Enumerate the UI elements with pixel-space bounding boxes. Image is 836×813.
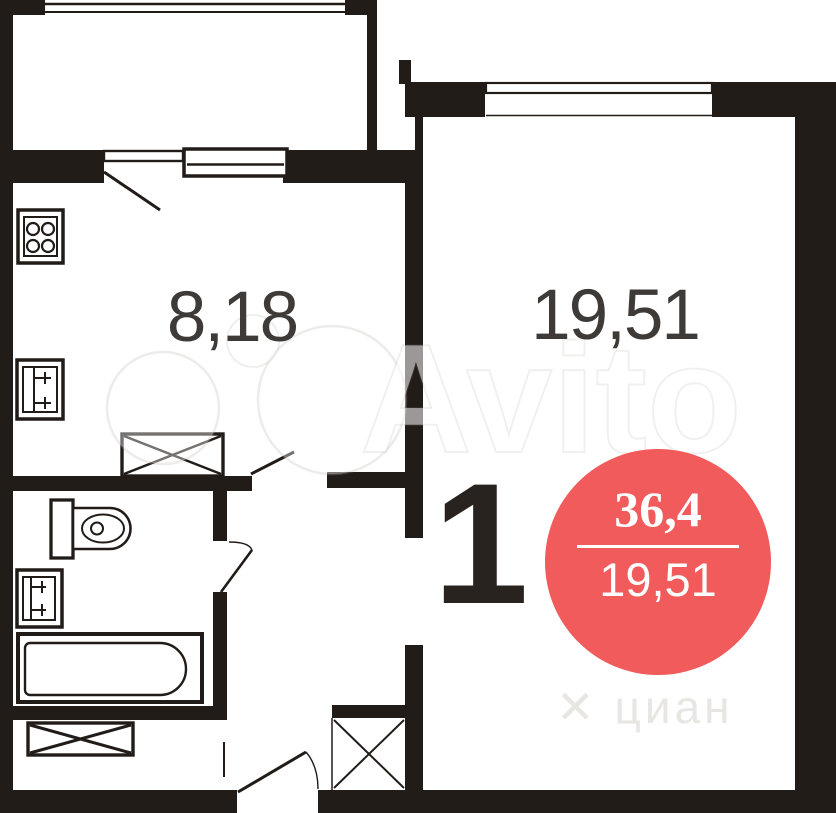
window-icon	[184, 149, 287, 176]
cian-logo-icon: ✕	[556, 684, 599, 730]
washbasin-icon	[17, 570, 62, 627]
badge-divider	[577, 545, 739, 548]
bathroom-door	[221, 542, 252, 592]
total-area-value: 36,4	[614, 483, 702, 536]
bathroom-wall-upper	[213, 491, 227, 541]
cian-watermark-text: циан	[615, 684, 734, 730]
bottom-wall-left	[0, 790, 237, 813]
kitchen-door	[251, 452, 294, 474]
window-icon	[486, 83, 712, 93]
cian-watermark: ✕ циан	[556, 684, 734, 730]
left-outer-wall	[0, 0, 13, 813]
living-area-value: 19,51	[599, 555, 717, 604]
balcony-glazing	[45, 4, 345, 12]
floor-plan-image: Avito ✕ циан 8,18 19,51 1 36,4 19,51	[0, 0, 836, 813]
wall-protrusion	[399, 60, 411, 84]
entrance-door	[238, 752, 318, 792]
stove-icon	[18, 210, 63, 263]
bathtub-icon	[18, 634, 202, 702]
kitchen-top-wall-right	[292, 150, 423, 183]
closet-cross-icon	[334, 720, 404, 788]
room-area-label: 19,51	[516, 280, 714, 351]
closet-top-wall	[332, 705, 423, 718]
vestibule-wardrobe-box	[28, 723, 133, 755]
rooms-count-label: 1	[433, 458, 517, 630]
door-leaf-icon	[251, 452, 294, 474]
door-swing-arc	[306, 752, 318, 789]
bottom-wall-right	[318, 790, 836, 813]
balcony-door-and-window	[104, 149, 287, 210]
kitchen-sink-icon	[17, 360, 63, 419]
kitchen-top-wall-left	[0, 150, 96, 183]
toilet-icon	[51, 500, 131, 558]
door-leaf-icon	[104, 172, 160, 210]
door-swing-arc	[229, 542, 252, 550]
room-window	[486, 83, 712, 116]
bathroom-bottom-wall	[13, 706, 227, 720]
kitchen-hall-wall-right	[327, 472, 423, 488]
door-leaf-icon	[238, 752, 306, 792]
area-badge: 36,4 19,51	[545, 449, 771, 675]
kitchen-area-label: 8,18	[156, 282, 308, 353]
door-leaf-icon	[221, 550, 252, 592]
balcony-corner-left	[0, 0, 45, 15]
kitchen-hall-wall-left	[13, 476, 252, 491]
balcony-door-panel	[104, 151, 183, 161]
room-top-wall-left	[405, 82, 485, 117]
kitchen-wardrobe-box	[122, 434, 223, 476]
dividing-wall-top	[415, 117, 423, 152]
right-outer-wall	[795, 82, 836, 810]
bathroom-wall-lower	[213, 592, 227, 719]
balcony-right-wall	[367, 0, 377, 152]
